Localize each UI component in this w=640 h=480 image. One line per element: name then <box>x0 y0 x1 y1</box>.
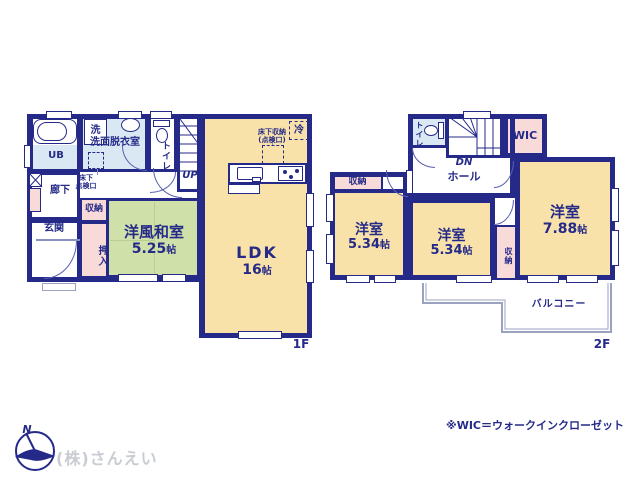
toilet-bowl-icon-2f <box>424 125 438 136</box>
label-washer: 洗 <box>84 125 107 137</box>
room-b-name: 洋室 <box>408 228 495 244</box>
room-c-size: 7.88帖 <box>517 221 613 237</box>
window <box>326 194 334 222</box>
label-stairs-dn: DN <box>452 157 476 169</box>
floorplan-canvas: UB 洗面脱衣室 洗 トイレ UP 廊下 玄関 収納 押入 床下 点検口 洋風和… <box>0 0 640 480</box>
japanese-room-name: 洋風和室 <box>106 224 202 241</box>
window <box>118 274 158 282</box>
label-balcony: バルコニー <box>524 299 594 311</box>
compass-north-label: N <box>20 424 34 437</box>
label-closet-2f-right: 収納 <box>500 240 513 272</box>
label-room-534-left: 洋室 5.34帖 <box>330 222 408 253</box>
window <box>456 275 492 283</box>
room-a-size: 5.34帖 <box>330 238 408 253</box>
label-hall: ホール <box>444 171 484 184</box>
label-toilet-2f: トイレ <box>412 119 424 149</box>
stairs-2f-treads <box>446 114 503 158</box>
compass-icon <box>12 427 58 473</box>
window <box>406 170 413 194</box>
japanese-room-size: 5.25帖 <box>106 241 202 257</box>
underfloor-hatch-box <box>88 152 104 169</box>
label-washroom: 洗面脱衣室 <box>84 137 146 149</box>
entrance-step-line <box>36 239 80 241</box>
window <box>162 274 186 282</box>
label-floor-2f: 2F <box>590 338 614 352</box>
bathtub-inner <box>37 122 67 141</box>
label-wic: WIC <box>503 130 547 143</box>
window <box>24 145 31 168</box>
ufs-line1: 床下収納 <box>258 128 286 136</box>
label-oshiire: 押入 <box>93 235 107 277</box>
ldk-name: LDK <box>202 244 312 262</box>
label-underfloor-hatch: 床下 点検口 <box>70 174 102 190</box>
door-arc-room-mid <box>494 200 514 225</box>
label-room-534-mid: 洋室 5.34帖 <box>408 228 495 259</box>
window <box>46 111 72 119</box>
hatch-line1: 床下 <box>79 174 93 182</box>
ldk-size: 16帖 <box>202 262 312 278</box>
window <box>566 275 598 283</box>
window <box>463 111 491 119</box>
room-a-name: 洋室 <box>330 222 408 238</box>
kitchen-counter-lip <box>228 184 260 194</box>
hatch-line2: 点検口 <box>76 182 97 190</box>
label-closet-1f: 収納 <box>81 204 107 214</box>
window <box>346 275 370 283</box>
window <box>374 275 396 283</box>
toilet-tank-icon <box>153 120 170 127</box>
label-closet-2f-left: 収納 <box>334 177 381 187</box>
label-fridge: 冷 <box>289 125 309 137</box>
room-c-name: 洋室 <box>517 204 613 221</box>
label-japanese-room: 洋風和室 5.25帖 <box>106 224 202 257</box>
label-stairs-up: UP <box>179 170 201 182</box>
stove-burner <box>295 169 299 173</box>
stove-burner <box>289 175 293 179</box>
window <box>306 193 314 227</box>
wic-footnote: ※WIC＝ウォークインクローゼット <box>368 420 624 433</box>
room-ldk <box>202 114 312 338</box>
ufs-line2: (点検口) <box>258 136 285 144</box>
label-entrance: 玄関 <box>34 223 74 235</box>
entrance-porch <box>42 283 76 291</box>
room-b-size: 5.34帖 <box>408 244 495 259</box>
label-floor-1f: 1F <box>290 338 312 352</box>
label-room-788: 洋室 7.88帖 <box>517 204 613 237</box>
window <box>150 111 172 119</box>
stove-burner <box>283 170 287 174</box>
company-name: (株)さんえい <box>56 450 196 468</box>
label-ub: UB <box>38 150 74 162</box>
sink-icon <box>121 118 140 132</box>
window <box>238 331 282 339</box>
window <box>118 111 142 119</box>
window <box>527 275 559 283</box>
underfloor-storage-box <box>262 145 284 164</box>
label-underfloor-storage: 床下収納 (点検口) <box>250 128 294 144</box>
kitchen-faucet-icon <box>252 177 261 182</box>
label-ldk: LDK 16帖 <box>202 244 312 278</box>
toilet-tank-icon-2f <box>438 122 444 139</box>
label-toilet-1f: トイレ <box>157 136 170 176</box>
